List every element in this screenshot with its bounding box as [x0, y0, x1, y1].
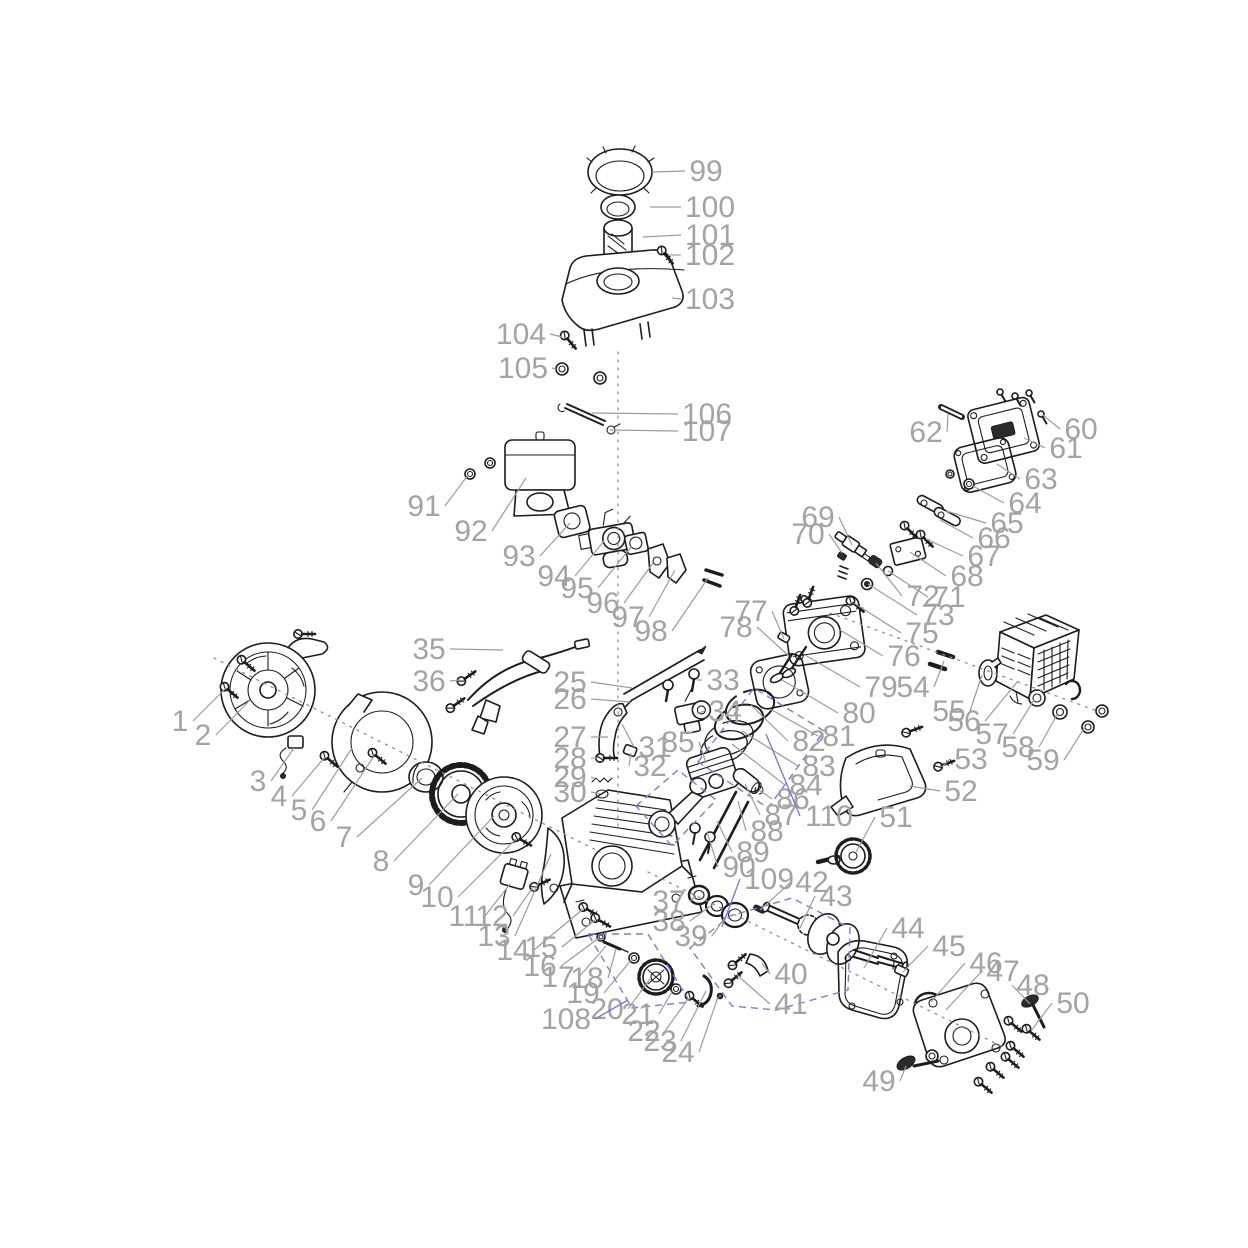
- part-label-30: 30: [553, 776, 586, 809]
- part-label-34: 34: [708, 695, 741, 728]
- washer: [1082, 721, 1094, 733]
- leader-line-86: [759, 790, 772, 799]
- part-label-33: 33: [706, 664, 739, 697]
- leader-line-98: [672, 578, 708, 631]
- screw: [456, 668, 478, 687]
- fuel-cap-gasket: [601, 195, 635, 219]
- pin: [610, 944, 628, 952]
- leader-line-26: [591, 699, 630, 702]
- part-label-1: 1: [172, 705, 189, 738]
- screw: [973, 1076, 995, 1096]
- leader-line-59: [1064, 727, 1085, 760]
- leader-line-67: [926, 539, 963, 556]
- part-label-92: 92: [454, 515, 487, 548]
- valve-plate-68: [890, 536, 926, 565]
- leader-line-8: [394, 794, 458, 861]
- part-label-70: 70: [791, 518, 824, 551]
- part-label-4: 4: [271, 780, 288, 813]
- governor-arm: [599, 704, 627, 758]
- leader-line-35: [450, 649, 503, 650]
- leader-line-93: [540, 523, 570, 556]
- valve-cap-72: [868, 554, 883, 568]
- part-label-5: 5: [291, 794, 308, 827]
- leader-line-68: [910, 552, 946, 576]
- leader-line-82: [751, 705, 788, 741]
- lock-ring-58: [1066, 681, 1080, 699]
- leader-line-106: [592, 413, 678, 414]
- parts-diagram-page: 1234567891011121314151617181920212223242…: [0, 0, 1248, 1248]
- assembly-axis: [214, 658, 600, 852]
- leader-line-63: [997, 464, 1020, 479]
- leader-line-31: [622, 724, 634, 747]
- part-label-105: 105: [498, 352, 548, 385]
- part-label-76: 76: [887, 640, 920, 673]
- part-label-39: 39: [674, 920, 707, 953]
- part-label-41: 41: [774, 988, 807, 1021]
- breather-pin-62: [941, 407, 962, 417]
- leader-line-18: [608, 949, 616, 978]
- screw: [445, 695, 467, 714]
- rod-cap: [746, 954, 768, 976]
- fuel-tank: [562, 250, 684, 346]
- screw: [1003, 1015, 1025, 1035]
- washer: [594, 372, 606, 384]
- leader-line-1: [193, 688, 226, 721]
- part-label-62: 62: [909, 416, 942, 449]
- part-label-7: 7: [336, 821, 353, 854]
- part-label-6: 6: [310, 805, 327, 838]
- leader-line-99: [652, 171, 685, 172]
- leader-line-80: [782, 680, 838, 713]
- part-label-93: 93: [502, 540, 535, 573]
- leader-line-83: [742, 731, 798, 766]
- leader-line-41: [737, 975, 770, 1004]
- screw: [1021, 1023, 1043, 1043]
- washer: [485, 458, 495, 468]
- part-label-99: 99: [689, 155, 722, 188]
- part-label-44: 44: [891, 912, 924, 945]
- washer: [964, 479, 974, 489]
- part-label-109: 109: [744, 863, 794, 896]
- part-label-3: 3: [250, 765, 267, 798]
- part-label-61: 61: [1049, 432, 1082, 465]
- part-label-50: 50: [1056, 987, 1089, 1020]
- leader-line-57: [1013, 700, 1034, 734]
- leader-line-97: [649, 570, 675, 617]
- fuel-line: [558, 404, 605, 425]
- part-label-59: 59: [1026, 744, 1059, 777]
- cylinder-head: [782, 595, 866, 667]
- part-label-102: 102: [685, 239, 735, 272]
- part-label-8: 8: [373, 845, 390, 878]
- flywheel: [466, 777, 542, 853]
- air-cleaner: [505, 432, 575, 516]
- tappets: [690, 823, 715, 853]
- leader-line-58: [1039, 713, 1058, 747]
- screw: [294, 630, 315, 638]
- part-label-104: 104: [496, 318, 546, 351]
- part-label-81: 81: [822, 720, 855, 753]
- part-label-24: 24: [661, 1036, 694, 1069]
- pin: [706, 570, 722, 575]
- leader-line-4: [292, 758, 324, 796]
- part-label-85: 85: [661, 726, 694, 759]
- part-label-78: 78: [719, 611, 752, 644]
- flange-bolt-33b: [663, 680, 673, 701]
- exploded-diagram-canvas: 1234567891011121314151617181920212223242…: [0, 0, 1248, 1248]
- screw: [559, 330, 579, 352]
- part-label-36: 36: [412, 665, 445, 698]
- washer: [1096, 705, 1108, 717]
- leader-line-62: [947, 414, 948, 432]
- part-label-49: 49: [862, 1065, 895, 1098]
- part-label-20: 20: [590, 993, 623, 1026]
- part-label-45: 45: [932, 930, 965, 963]
- screw: [1000, 1051, 1022, 1071]
- recoil-starter: [221, 643, 315, 737]
- part-label-26: 26: [553, 683, 586, 716]
- part-label-103: 103: [685, 283, 735, 316]
- part-label-51: 51: [879, 801, 912, 834]
- part-label-35: 35: [412, 633, 445, 666]
- part-label-2: 2: [195, 719, 212, 752]
- leader-line-101: [643, 235, 681, 237]
- stop-switch-wire: [280, 736, 303, 779]
- screw: [985, 1061, 1007, 1081]
- washer: [946, 470, 954, 478]
- part-label-47: 47: [986, 955, 1019, 988]
- part-label-98: 98: [634, 615, 667, 648]
- screw: [1037, 410, 1049, 425]
- side-shroud: [542, 828, 565, 904]
- leader-line-5: [312, 748, 352, 810]
- screw: [901, 723, 924, 738]
- part-label-107: 107: [682, 415, 732, 448]
- oil-pipe: [698, 976, 711, 1006]
- part-label-43: 43: [819, 880, 852, 913]
- part-label-91: 91: [407, 490, 440, 523]
- part-label-52: 52: [944, 775, 977, 808]
- part-label-110: 110: [805, 800, 853, 833]
- part-label-108: 108: [541, 1003, 591, 1036]
- part-label-48: 48: [1016, 969, 1049, 1002]
- leader-line-91: [445, 475, 468, 506]
- valve-spring: [838, 566, 848, 579]
- leader-line-94: [575, 541, 604, 576]
- washer: [556, 363, 568, 375]
- rocker-arms: [916, 494, 962, 527]
- retainer-73: [862, 579, 873, 590]
- leader-line-9: [429, 816, 494, 885]
- part-label-54: 54: [896, 671, 929, 704]
- screw: [727, 951, 749, 971]
- leader-line-107: [610, 430, 678, 431]
- screw: [899, 520, 920, 541]
- fuel-cap: [587, 146, 654, 195]
- washer: [1053, 705, 1067, 719]
- leader-line-25: [591, 682, 632, 688]
- part-label-40: 40: [774, 958, 807, 991]
- leader-line-96: [624, 563, 653, 603]
